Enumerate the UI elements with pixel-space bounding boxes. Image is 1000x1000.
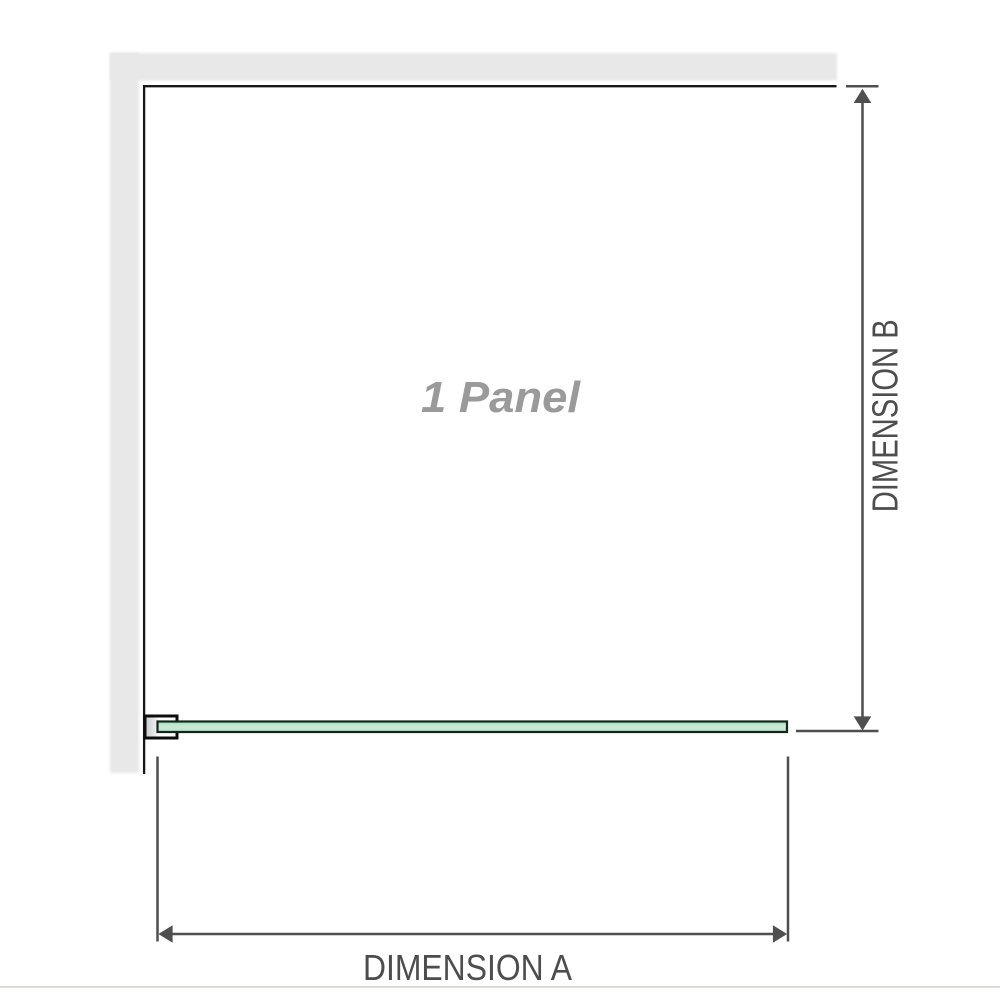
svg-text:1 Panel: 1 Panel	[421, 373, 581, 422]
svg-text:DIMENSION B: DIMENSION B	[864, 319, 905, 512]
svg-text:DIMENSION A: DIMENSION A	[363, 947, 573, 988]
